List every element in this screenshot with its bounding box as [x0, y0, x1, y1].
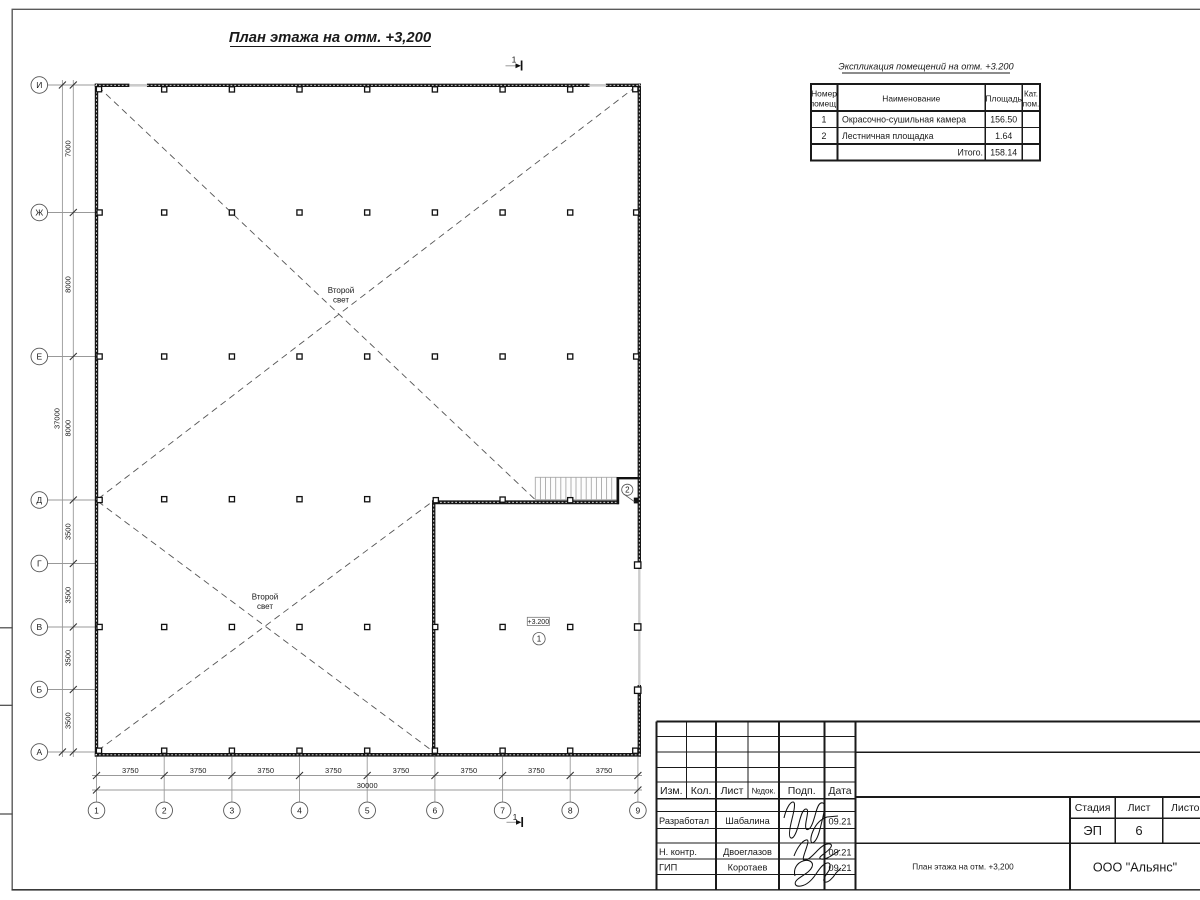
svg-text:3750: 3750 [190, 766, 207, 775]
svg-text:1: 1 [822, 115, 827, 125]
svg-text:ООО "Альянс": ООО "Альянс" [1093, 861, 1177, 875]
svg-text:Кол.: Кол. [691, 785, 712, 797]
svg-text:свет: свет [257, 602, 273, 611]
svg-text:Листов: Листов [1171, 802, 1200, 814]
svg-text:7000: 7000 [64, 140, 73, 157]
svg-text:4: 4 [297, 805, 302, 815]
svg-text:3750: 3750 [460, 766, 477, 775]
svg-text:Наименование: Наименование [882, 94, 940, 104]
svg-text:ЭП: ЭП [1083, 823, 1102, 838]
svg-text:9: 9 [636, 805, 641, 815]
svg-text:План этажа на отм. +3,200: План этажа на отм. +3,200 [912, 863, 1014, 872]
svg-text:3750: 3750 [257, 766, 274, 775]
svg-text:3750: 3750 [325, 766, 342, 775]
svg-text:+3.200: +3.200 [527, 619, 549, 626]
svg-text:6: 6 [433, 805, 438, 815]
svg-text:свет: свет [333, 296, 349, 305]
svg-text:8000: 8000 [64, 420, 73, 437]
svg-text:Д: Д [36, 495, 42, 505]
svg-text:3500: 3500 [64, 587, 73, 604]
svg-text:Площадь: Площадь [985, 94, 1022, 104]
svg-text:8: 8 [568, 805, 573, 815]
svg-text:3500: 3500 [64, 650, 73, 667]
svg-text:1: 1 [512, 55, 517, 65]
svg-text:3750: 3750 [393, 766, 410, 775]
svg-text:Разработал: Разработал [659, 816, 709, 826]
svg-text:2: 2 [162, 805, 167, 815]
svg-text:1.64: 1.64 [995, 131, 1012, 141]
svg-text:09.21: 09.21 [829, 817, 852, 827]
svg-text:Номер: Номер [811, 89, 837, 99]
svg-text:30000: 30000 [357, 781, 378, 790]
svg-text:Лестничная площадка: Лестничная площадка [842, 131, 934, 141]
svg-text:8000: 8000 [64, 276, 73, 293]
svg-text:И: И [36, 80, 42, 90]
svg-text:Двоеглазов: Двоеглазов [723, 847, 772, 857]
svg-text:Экспликация помещений на отм.: Экспликация помещений на отм. +3.200 [838, 62, 1014, 72]
svg-text:Подп.: Подп. [788, 785, 816, 797]
svg-text:5: 5 [365, 805, 370, 815]
svg-text:Лист: Лист [1128, 802, 1151, 814]
svg-text:Лист: Лист [721, 785, 744, 797]
svg-text:156.50: 156.50 [990, 115, 1017, 125]
svg-text:№док.: №док. [752, 787, 776, 796]
svg-text:37000: 37000 [53, 408, 62, 429]
svg-text:Ж: Ж [35, 208, 43, 218]
svg-text:Итого.: Итого. [958, 148, 984, 158]
svg-text:1: 1 [537, 635, 542, 644]
svg-text:Б: Б [37, 685, 43, 695]
svg-text:3750: 3750 [122, 766, 139, 775]
svg-text:3500: 3500 [64, 712, 73, 729]
svg-text:В: В [36, 622, 42, 632]
svg-text:3: 3 [230, 805, 235, 815]
svg-text:6: 6 [1135, 823, 1142, 838]
svg-text:3500: 3500 [64, 523, 73, 540]
svg-text:158.14: 158.14 [990, 148, 1017, 158]
svg-text:ГИП: ГИП [659, 863, 677, 873]
svg-text:Окрасочно-сушильная камера: Окрасочно-сушильная камера [842, 115, 966, 125]
svg-text:Изм.: Изм. [660, 785, 683, 797]
svg-text:пом.: пом. [1023, 100, 1040, 109]
svg-text:2: 2 [822, 131, 827, 141]
svg-text:Дата: Дата [828, 785, 851, 797]
svg-text:Н. контр.: Н. контр. [659, 847, 697, 857]
svg-text:Г: Г [37, 559, 42, 569]
svg-text:Стадия: Стадия [1075, 802, 1111, 814]
svg-text:Кат.: Кат. [1024, 90, 1038, 99]
svg-text:План этажа на отм. +3,200: План этажа на отм. +3,200 [229, 30, 432, 46]
svg-text:Шабалина: Шабалина [725, 816, 770, 826]
svg-text:А: А [36, 747, 42, 757]
svg-text:Е: Е [36, 352, 42, 362]
svg-text:09.21: 09.21 [829, 863, 852, 873]
svg-text:1: 1 [94, 805, 99, 815]
svg-text:2: 2 [625, 486, 630, 495]
svg-text:Второй: Второй [252, 593, 278, 602]
svg-text:помещ.: помещ. [810, 99, 839, 109]
svg-text:3750: 3750 [596, 766, 613, 775]
svg-text:Второй: Второй [328, 286, 354, 295]
svg-text:Коротаев: Коротаев [728, 863, 768, 873]
svg-text:3750: 3750 [528, 766, 545, 775]
svg-text:7: 7 [500, 805, 505, 815]
